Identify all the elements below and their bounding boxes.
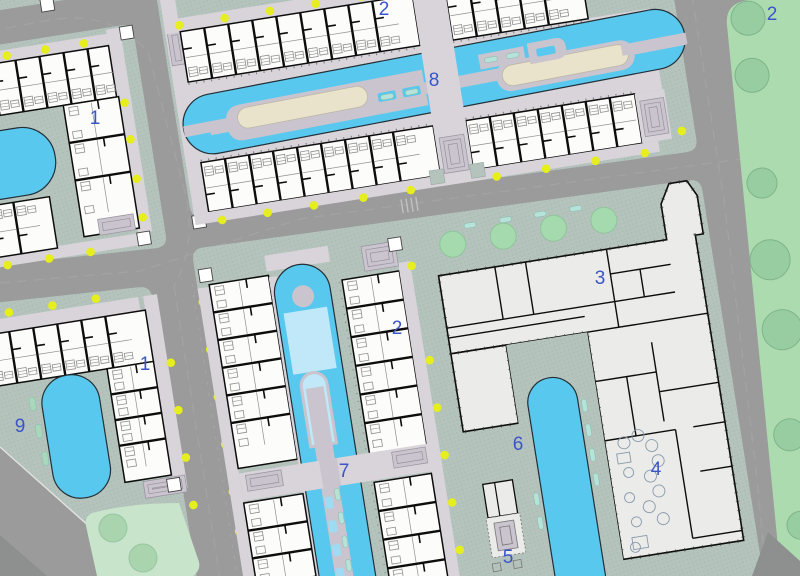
svg-text:7: 7 xyxy=(339,461,350,482)
svg-text:2: 2 xyxy=(392,318,403,339)
svg-text:4: 4 xyxy=(651,459,662,480)
svg-text:3: 3 xyxy=(595,268,606,289)
svg-text:8: 8 xyxy=(429,70,440,91)
svg-text:5: 5 xyxy=(503,547,514,568)
svg-text:9: 9 xyxy=(15,416,26,437)
svg-text:2: 2 xyxy=(767,4,778,25)
svg-text:1: 1 xyxy=(90,108,101,129)
svg-text:6: 6 xyxy=(513,434,524,455)
svg-text:2: 2 xyxy=(379,0,390,20)
svg-text:1: 1 xyxy=(140,354,151,375)
